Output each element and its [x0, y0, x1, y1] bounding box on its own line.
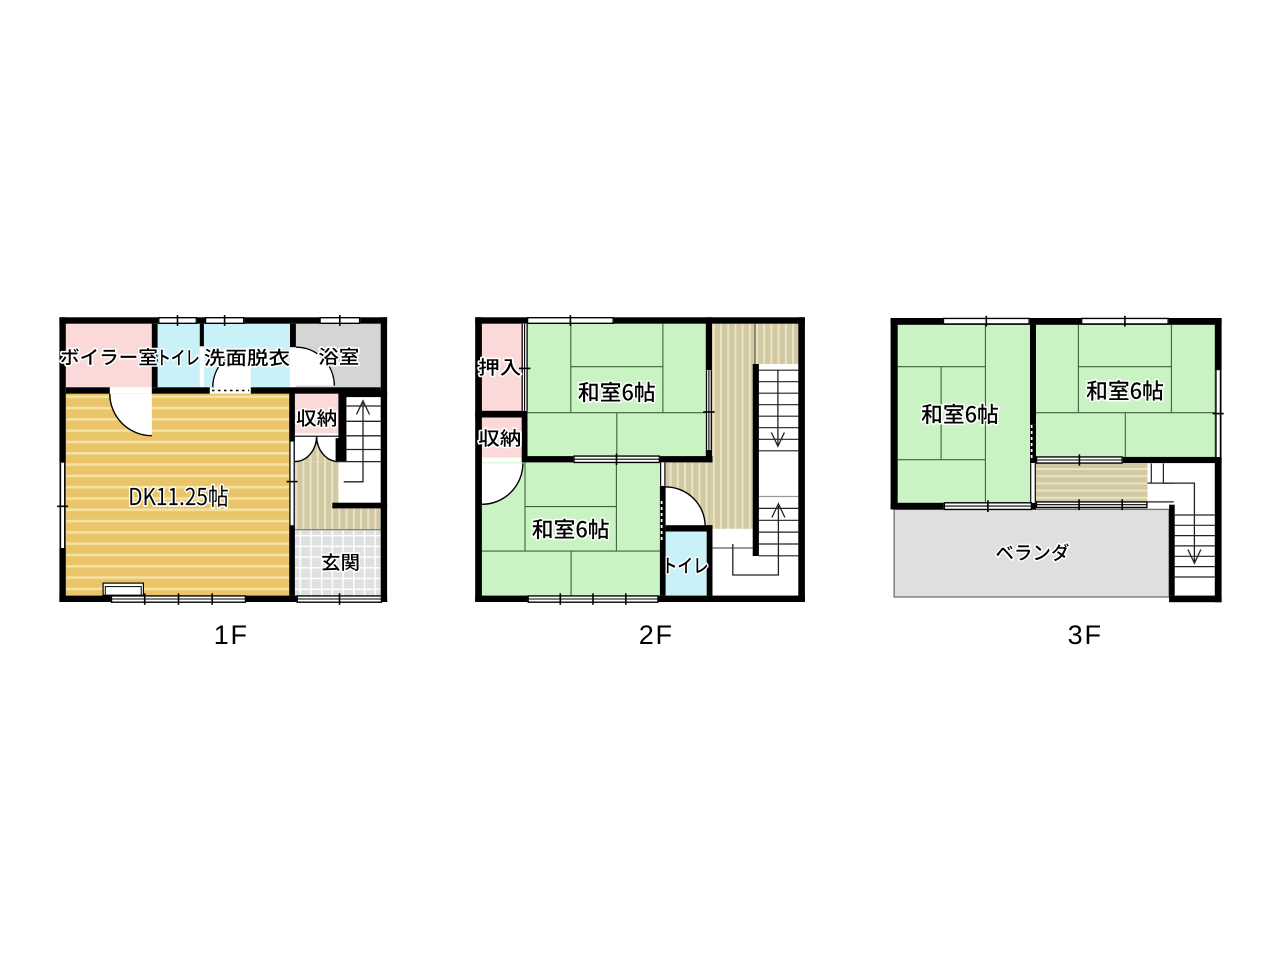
svg-text:2F: 2F — [639, 620, 674, 650]
svg-text:3F: 3F — [1068, 620, 1103, 650]
svg-text:1F: 1F — [214, 620, 249, 650]
